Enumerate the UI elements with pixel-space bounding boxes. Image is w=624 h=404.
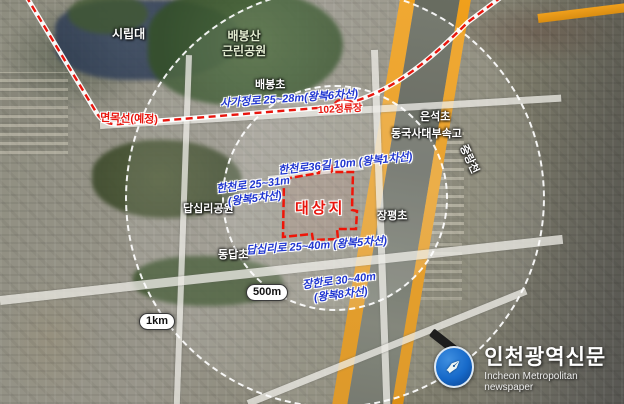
label-dongguk-high: 동국사대부속고 [391, 128, 462, 142]
pen-nib-icon: ✒ [438, 351, 469, 383]
label-target-site: 대상지 [295, 200, 345, 219]
apartment-blocks-west [0, 72, 68, 154]
label-university: 시립대 [112, 27, 145, 42]
newspaper-subtitle: Incheon Metropolitan newspaper [484, 371, 624, 393]
newspaper-logo-badge: ✒ [432, 344, 476, 390]
label-eunseok-elem: 은석초 [420, 111, 450, 125]
label-rail-station: 102정류장 [318, 103, 363, 118]
newspaper-title: 인천광역신문 [484, 341, 624, 371]
radius-label-1km: 1km [139, 313, 175, 330]
satellite-map: 시립대 배봉산 근린공원 배봉초 은석초 동국사대부속고 중랑천 장평초 답십리… [0, 0, 624, 404]
label-baebong-elem: 배봉초 [255, 79, 285, 93]
label-baebong-park: 배봉산 근린공원 [222, 29, 266, 59]
newspaper-logo: ✒ 인천광역신문 Incheon Metropolitan newspaper [432, 341, 624, 393]
label-dongdap-elem: 동답초 [218, 249, 248, 263]
label-rail-line: 면목선(예정) [100, 112, 158, 128]
newspaper-logo-text: 인천광역신문 Incheon Metropolitan newspaper [484, 341, 624, 393]
logo-circle: ✒ [434, 346, 474, 388]
label-jangpyeong-elem: 장평초 [377, 210, 407, 224]
radius-label-500m: 500m [246, 284, 288, 301]
